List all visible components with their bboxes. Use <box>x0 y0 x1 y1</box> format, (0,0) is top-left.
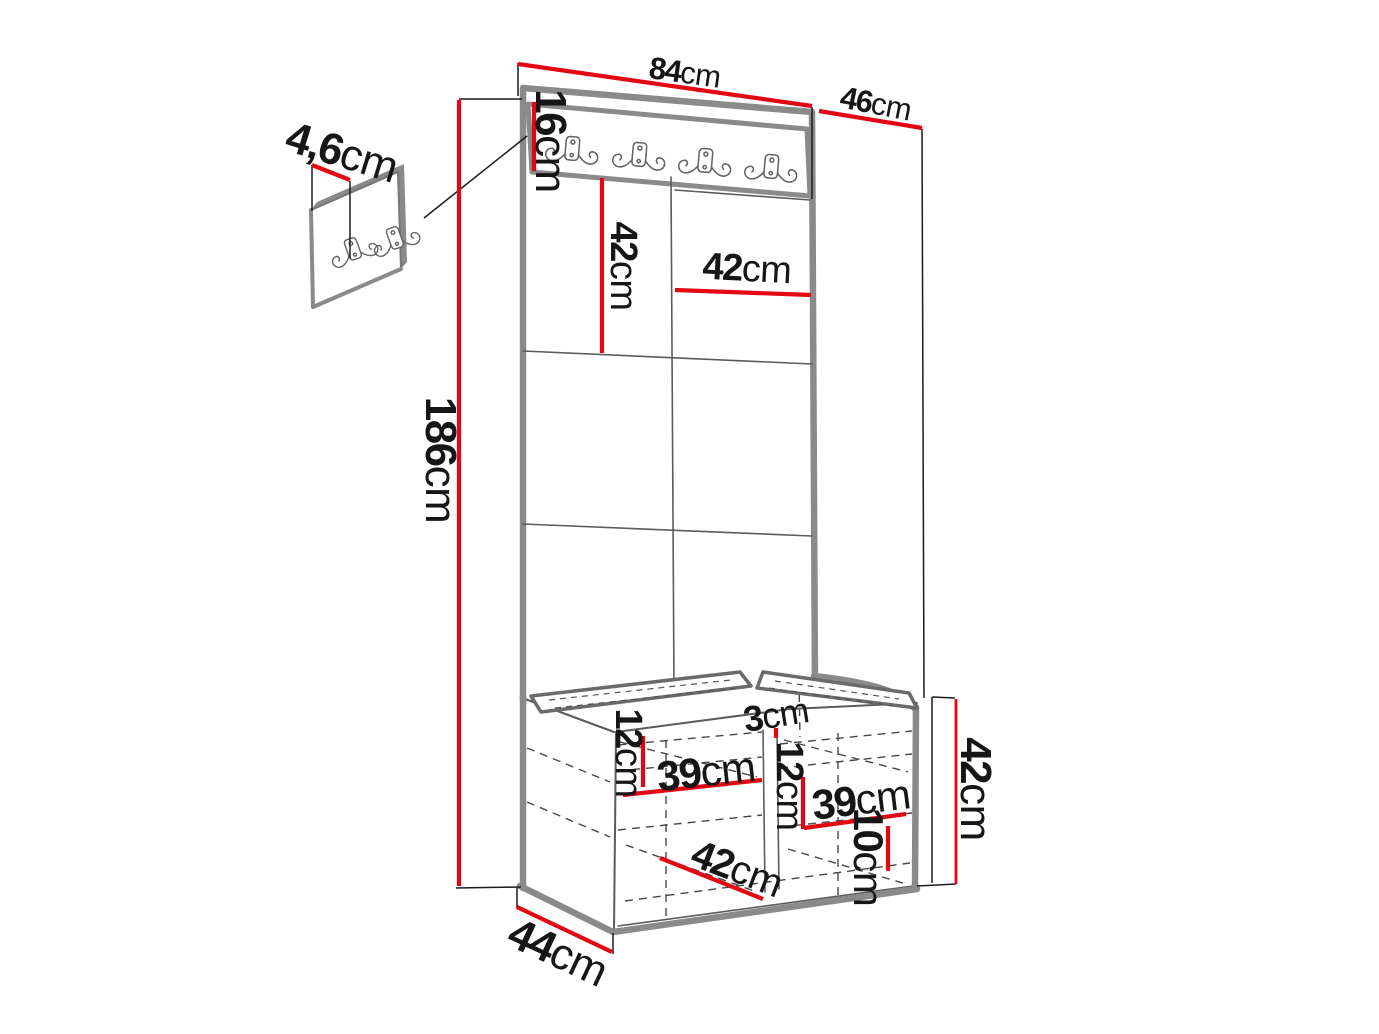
dim-bench-bottom-gap-label: 10cm <box>846 808 893 907</box>
dim-bench-right-shelf-gap-label: 12cm <box>768 742 810 831</box>
furniture-dimension-drawing: 4,6cm 16cm 84cm 46cm 42cm 42cm 186cm 12c… <box>0 0 1379 1034</box>
dim-hook-rail-height-label: 16cm <box>527 89 576 193</box>
dim-bench-left-shelf-gap-label: 12cm <box>607 709 649 798</box>
diagram-canvas: 4,6cm 16cm 84cm 46cm 42cm 42cm 186cm 12c… <box>0 0 1379 1034</box>
dim-panel-tile-height-label: 42cm <box>602 222 644 311</box>
dim-bench-height-label: 42cm <box>952 737 1001 841</box>
dim-unit-height-label: 186cm <box>417 397 466 524</box>
dim-panel-tile-width-label: 42cm <box>701 246 792 293</box>
